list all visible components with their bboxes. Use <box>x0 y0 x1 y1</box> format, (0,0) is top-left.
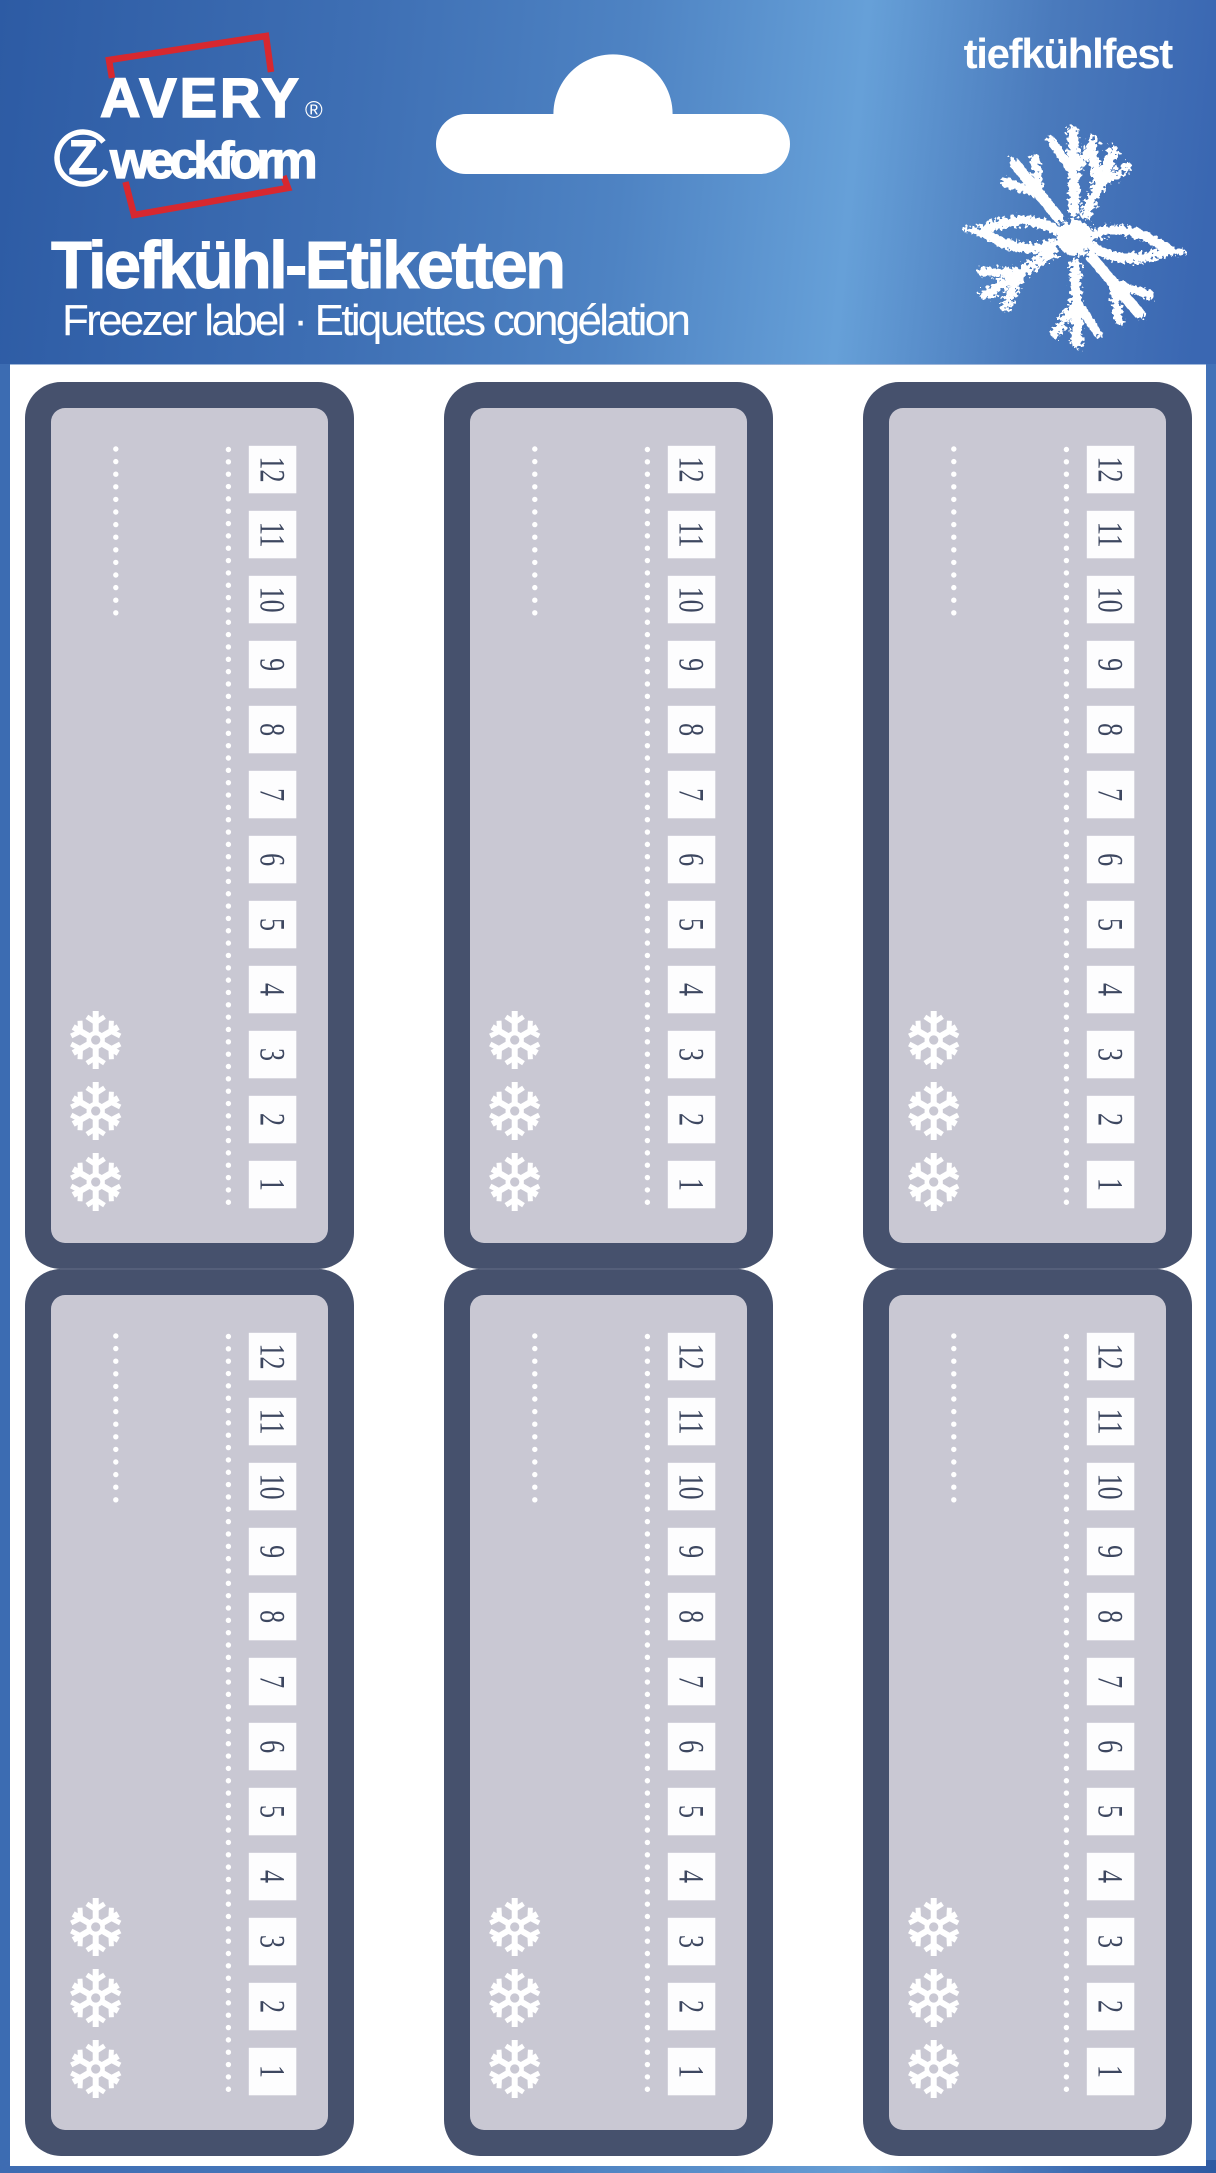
svg-text:Tiefkühl-Etiketten: Tiefkühl-Etiketten <box>51 228 563 303</box>
svg-text:weckform: weckform <box>109 132 316 190</box>
svg-text:tiefkühlfest: tiefkühlfest <box>964 30 1174 77</box>
svg-text:®: ® <box>305 97 323 124</box>
svg-text:AVERY: AVERY <box>100 66 302 129</box>
svg-text:Freezer label · Etiquettes con: Freezer label · Etiquettes congélation <box>62 296 688 345</box>
svg-text:Z: Z <box>68 132 97 185</box>
